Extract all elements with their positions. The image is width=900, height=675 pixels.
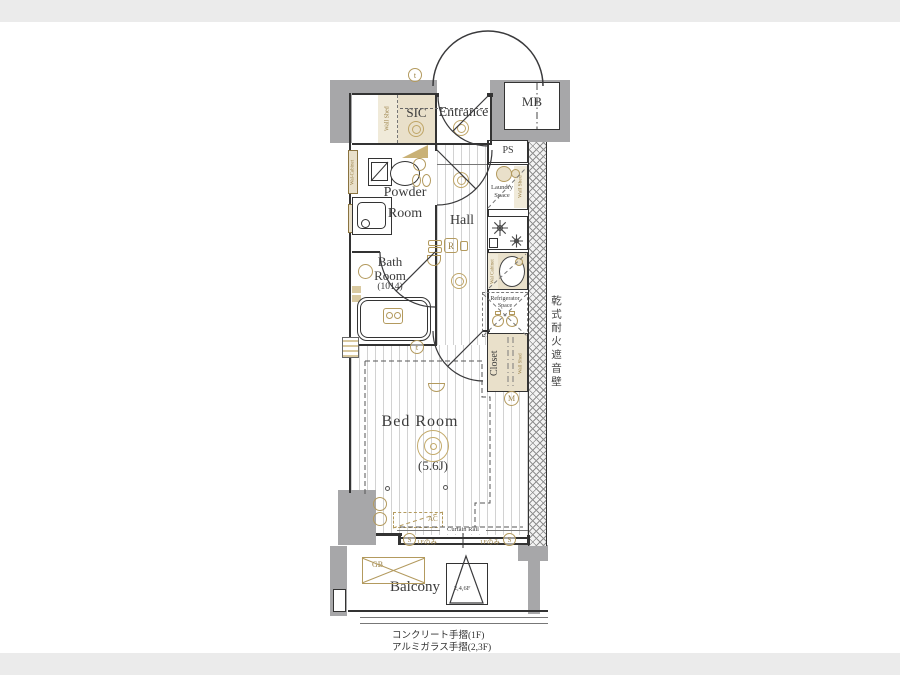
dropped-ceiling-dashed — [365, 361, 523, 527]
gb-x — [362, 558, 425, 583]
refrigerator-x — [483, 294, 527, 336]
laundry-diagonal-dashed — [488, 168, 526, 208]
ac-diagonal — [393, 512, 443, 528]
entrance-door-leaf — [453, 96, 488, 131]
evacuation-hatch-triangle — [450, 556, 483, 603]
closet-pipe-dashdot — [508, 337, 513, 389]
toilet-tank-diagonal — [371, 162, 388, 181]
bath-door-leaf — [396, 252, 435, 291]
plan-linework — [0, 0, 900, 675]
hall-door-leaf — [437, 150, 476, 189]
stove-burner-icon-2 — [510, 235, 523, 248]
sink-diagonal-dashed — [489, 254, 526, 288]
curved-bay-arc — [433, 31, 543, 86]
floorplan-canvas: MB PS 乾式耐火遮音壁 Wall Shed SIC Entrance Wal… — [0, 0, 900, 675]
stove-burner-icon-1 — [492, 220, 508, 236]
